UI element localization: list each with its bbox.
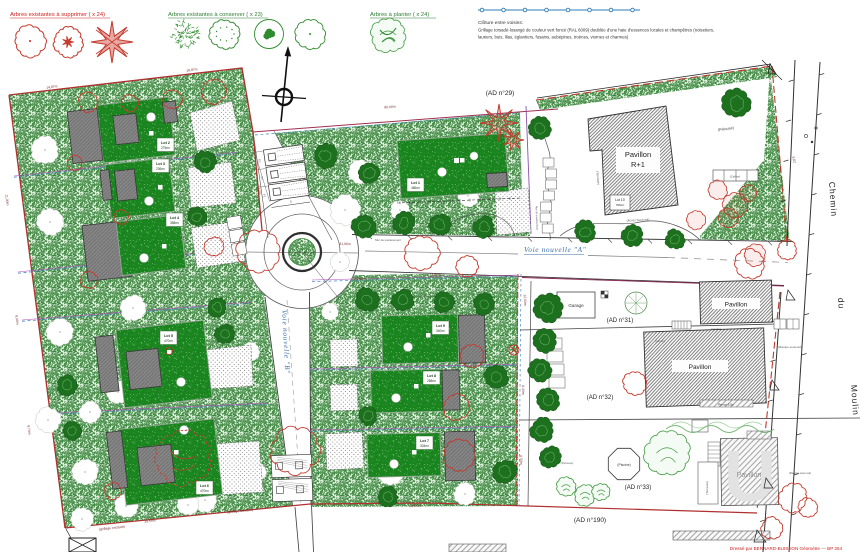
svg-text:Lot 8: Lot 8 [427,374,436,378]
svg-text:(Rampe sous-sol): (Rampe sous-sol) [789,471,811,475]
svg-text:41,96m: 41,96m [339,242,351,246]
svg-text:268m²: 268m² [427,379,436,383]
svg-text:Lot 4: Lot 4 [170,216,180,220]
svg-text:Lot 5: Lot 5 [164,334,173,338]
svg-text:Lot 1: Lot 1 [411,181,420,185]
svg-text:(AD n°190): (AD n°190) [574,516,606,524]
svg-text:Voie nouvelle "A": Voie nouvelle "A" [524,245,587,254]
svg-text:Clôture entre voisins:: Clôture entre voisins: [478,20,523,26]
svg-text:6,50m: 6,50m [519,455,523,465]
svg-text:236m²: 236m² [156,167,165,171]
svg-text:(AD n°31): (AD n°31) [607,318,633,324]
svg-text:Mur de soutènement: Mur de soutènement [375,238,401,242]
svg-text:28,85m: 28,85m [409,504,421,508]
svg-text:Lot 2: Lot 2 [161,141,170,145]
svg-text:Arbres existantes à conserver: Arbres existantes à conserver ( x 23) [168,12,263,18]
svg-text:Arbres existantes à supprimer: Arbres existantes à supprimer ( x 24) [10,12,105,18]
svg-text:275m²: 275m² [161,146,170,150]
svg-text:(AD n°29): (AD n°29) [486,89,515,97]
svg-text:(Pelouse): (Pelouse) [561,461,574,465]
svg-text:du: du [836,297,847,309]
svg-text:(Piscine): (Piscine) [617,463,630,467]
svg-text:Lot 7: Lot 7 [420,439,429,443]
svg-text:21,96m: 21,96m [354,277,366,281]
svg-text:Arbres à planter ( x 24): Arbres à planter ( x 24) [370,12,429,18]
svg-text:Lot 10: Lot 10 [615,198,625,202]
svg-text:Pavillon: Pavillon [725,302,748,309]
svg-text:(AD n°33): (AD n°33) [625,485,651,491]
svg-text:Pavillon: Pavillon [689,364,712,371]
svg-text:21,96m: 21,96m [429,273,441,277]
svg-text:8,00m: 8,00m [521,385,525,395]
svg-text:Dressé par BERNARD-BUISSON Géo: Dressé par BERNARD-BUISSON Géomètre — BP… [730,546,843,551]
svg-text:Lot 9: Lot 9 [436,324,445,328]
svg-text:(Cellier): (Cellier) [730,175,741,179]
svg-text:486m²: 486m² [411,186,420,190]
svg-text:340m²: 340m² [436,329,445,333]
svg-text:12,00m: 12,00m [523,294,527,306]
svg-text:(Rampe sous-sol): (Rampe sous-sol) [778,345,802,349]
svg-text:358m²: 358m² [170,221,179,225]
svg-text:(Jardin): (Jardin) [655,339,665,343]
svg-text:Lot 6: Lot 6 [200,484,209,488]
svg-text:60,90m: 60,90m [384,105,396,110]
svg-text:Lot 3: Lot 3 [156,162,165,166]
svg-text:(AD n°32): (AD n°32) [587,395,613,401]
svg-text:706m²: 706m² [616,203,625,207]
svg-text:Rampe 5,5m: Rampe 5,5m [718,403,735,407]
svg-text:Pavillon: Pavillon [737,472,762,479]
svg-text:Mur de soutènement: Mur de soutènement [409,294,435,298]
svg-text:470m²: 470m² [200,489,209,493]
svg-text:(Terrasse): (Terrasse) [705,481,709,495]
svg-text:Pavillon: Pavillon [625,150,651,159]
svg-text:470m²: 470m² [164,339,173,343]
svg-text:R+1: R+1 [631,160,645,169]
svg-text:lauriers, buis, lilas, églanti: lauriers, buis, lilas, églantiers, fusai… [478,35,629,40]
svg-text:Grillage torsadé-losangé de co: Grillage torsadé-losangé de couleur vert… [478,28,714,33]
svg-text:Garage: Garage [568,303,584,308]
svg-text:304m²: 304m² [420,444,429,448]
